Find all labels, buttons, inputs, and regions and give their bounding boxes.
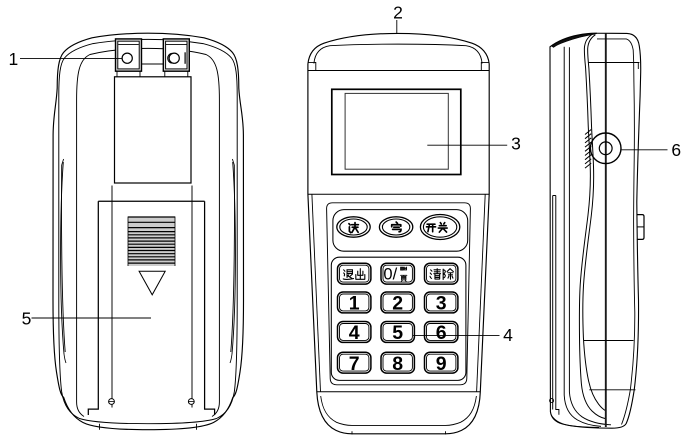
svg-text:4: 4 [349, 322, 360, 344]
svg-text:6: 6 [436, 322, 447, 344]
svg-text:8: 8 [392, 353, 403, 375]
svg-text:3: 3 [511, 134, 521, 154]
svg-text:2: 2 [393, 2, 403, 22]
svg-text:3: 3 [436, 293, 447, 315]
svg-text:4: 4 [503, 325, 513, 345]
svg-text:6: 6 [671, 140, 681, 160]
svg-text:7: 7 [349, 353, 360, 375]
svg-text:5: 5 [22, 308, 32, 328]
svg-text:0/: 0/ [383, 266, 397, 284]
svg-text:5: 5 [392, 322, 403, 344]
svg-text:2: 2 [392, 293, 403, 315]
svg-text:1: 1 [9, 49, 19, 69]
svg-text:9: 9 [436, 353, 447, 375]
svg-text:1: 1 [349, 293, 360, 315]
